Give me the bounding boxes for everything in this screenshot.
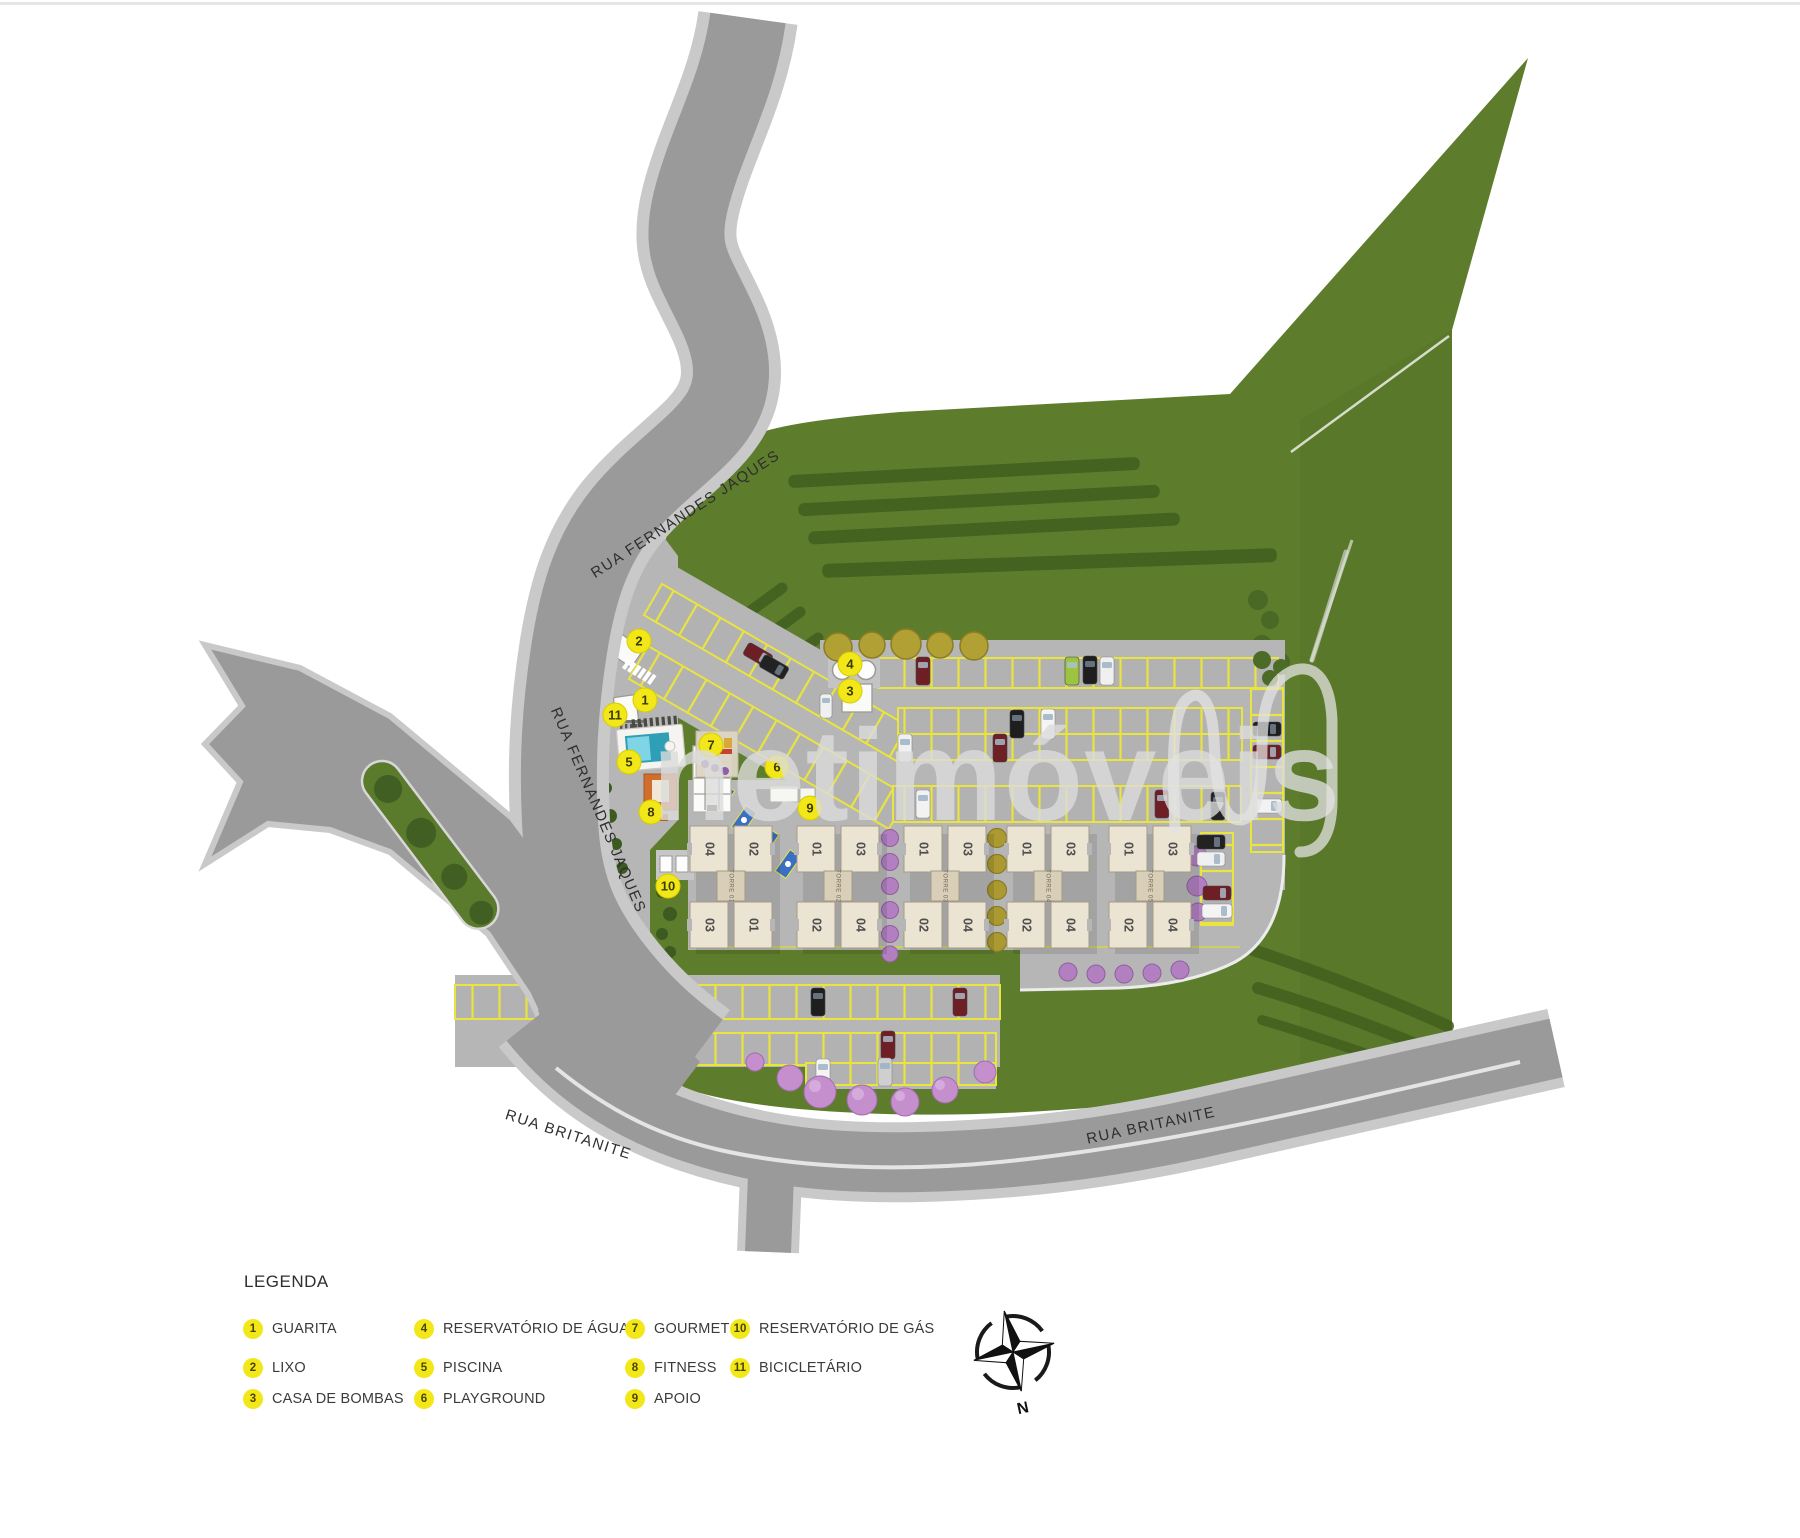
compass: N bbox=[965, 1302, 1068, 1425]
marker-number: 10 bbox=[661, 879, 675, 894]
tower-name: TORRE 04 bbox=[1044, 869, 1050, 902]
parking-row-bottom-c bbox=[806, 1063, 996, 1085]
unit-label: 03 bbox=[703, 918, 717, 932]
unit-label: 02 bbox=[1122, 918, 1136, 932]
unit-label: 01 bbox=[747, 918, 761, 932]
marker-number: 1 bbox=[641, 693, 648, 708]
marker-3: 3 bbox=[838, 679, 862, 703]
watermark-text: netimóveis bbox=[652, 702, 1341, 848]
unit-label: 02 bbox=[1020, 918, 1034, 932]
unit-label: 04 bbox=[961, 918, 975, 932]
marker-number: 3 bbox=[846, 684, 853, 699]
road-branch-south bbox=[768, 1150, 772, 1252]
unit-label: 04 bbox=[1064, 918, 1078, 932]
marker-2: 2 bbox=[627, 629, 651, 653]
marker-number: 2 bbox=[635, 634, 642, 649]
top-border-line bbox=[0, 2, 1800, 5]
tower-name: TORRE 01 bbox=[727, 869, 733, 902]
tower-name: TORRE 03 bbox=[941, 869, 947, 902]
site-plan-page: 04 02 03 01 TORRE 01 01 03 02 04 TORRE 0… bbox=[0, 0, 1800, 1538]
marker-number: 11 bbox=[608, 708, 622, 723]
compass-north-label: N bbox=[1016, 1399, 1031, 1418]
marker-number: 4 bbox=[846, 657, 854, 672]
marker-number: 5 bbox=[625, 755, 632, 770]
marker-5: 5 bbox=[617, 750, 641, 774]
marker-10: 10 bbox=[656, 874, 680, 898]
marker-11: 11 bbox=[603, 703, 627, 727]
unit-label: 04 bbox=[854, 918, 868, 932]
unit-label: 02 bbox=[810, 918, 824, 932]
unit-label: 02 bbox=[917, 918, 931, 932]
tower-name: TORRE 05 bbox=[1146, 869, 1152, 902]
unit-label: 04 bbox=[1166, 918, 1180, 932]
tower-name: TORRE 02 bbox=[834, 869, 840, 902]
marker-4: 4 bbox=[838, 652, 862, 676]
site-plan-svg: 04 02 03 01 TORRE 01 01 03 02 04 TORRE 0… bbox=[0, 0, 1800, 1538]
